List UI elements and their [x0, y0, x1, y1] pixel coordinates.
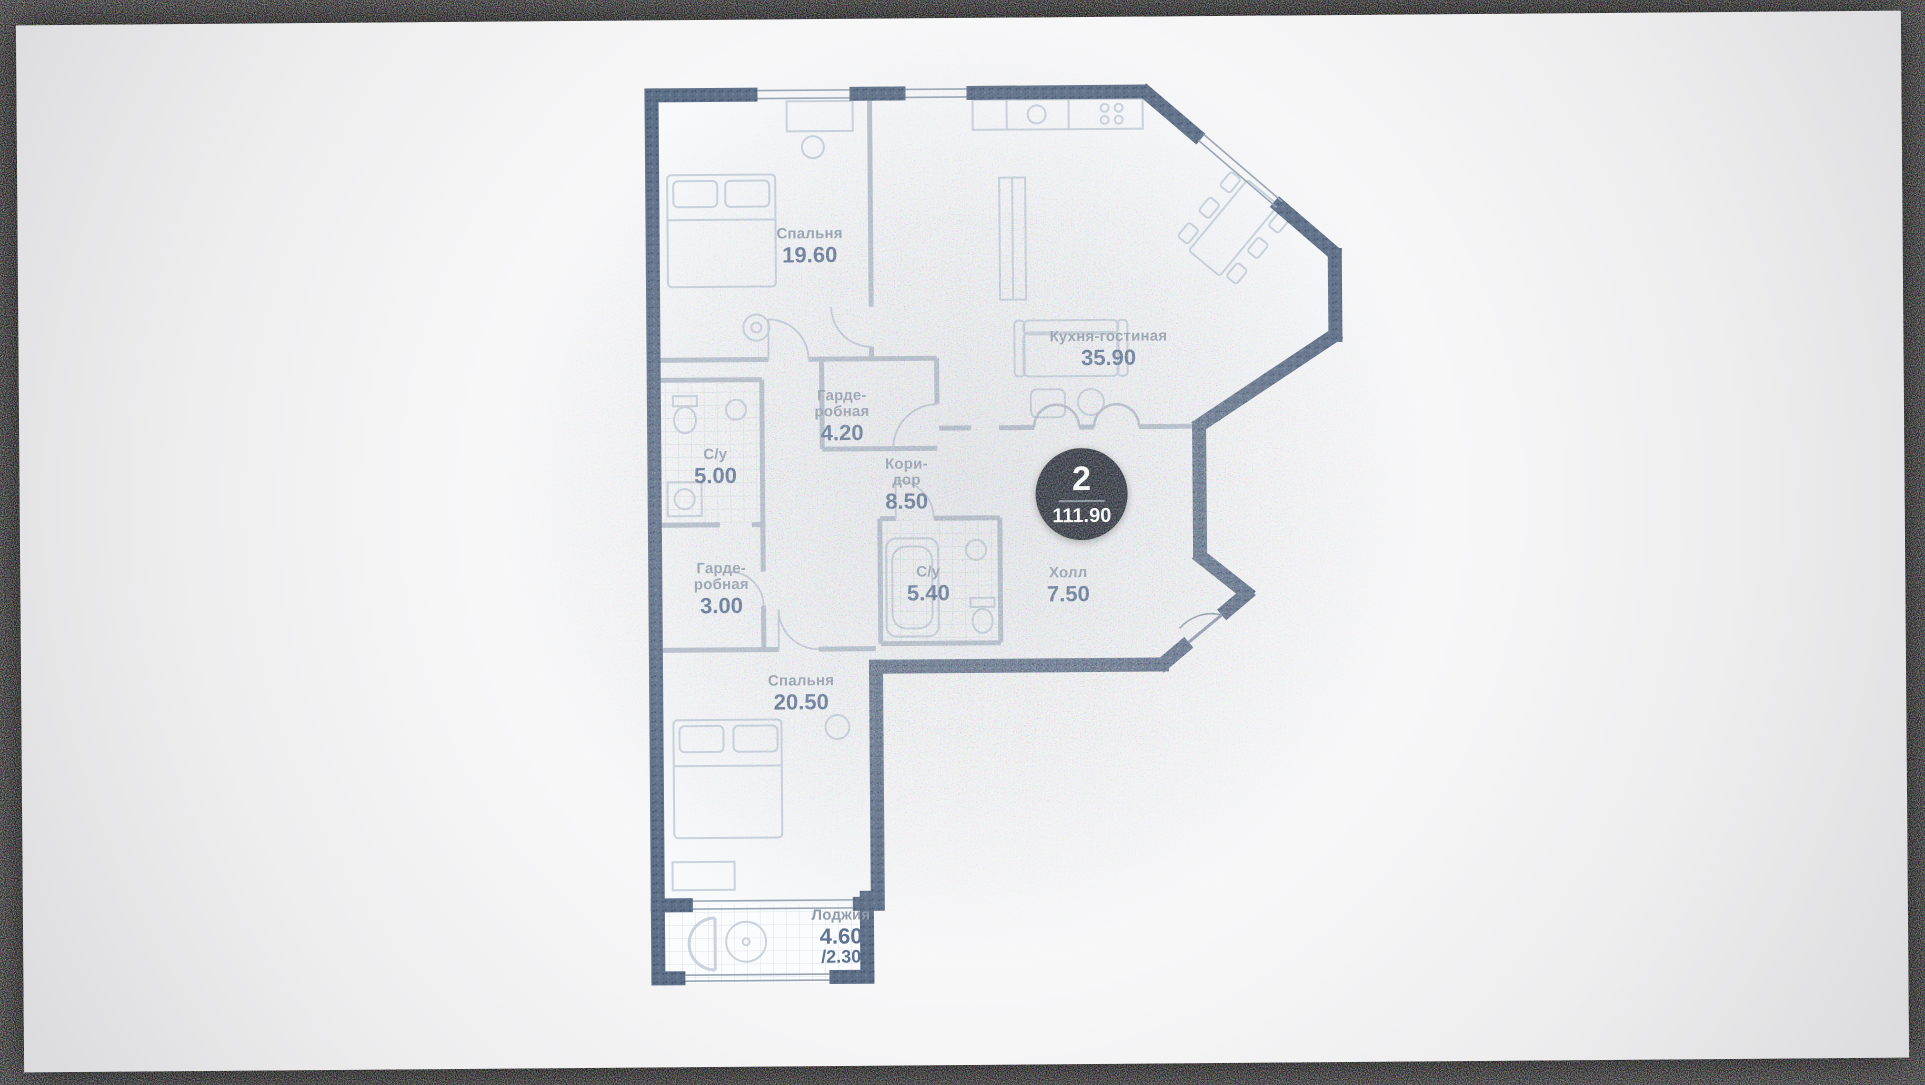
page-background: Спальня 19.60 Кухня-гостиная 35.90 Гарде… — [16, 11, 1909, 1073]
floor-plan: Спальня 19.60 Кухня-гостиная 35.90 Гарде… — [636, 75, 1363, 1001]
badge-divider — [1059, 500, 1105, 502]
bathroom-1-tiles — [656, 382, 761, 524]
badge-rooms-count: 2 — [1072, 462, 1091, 496]
floor-plan-drawing — [636, 75, 1363, 1001]
badge-total-area: 111.90 — [1052, 506, 1111, 526]
apartment-badge[interactable]: 2 111.90 — [1035, 448, 1128, 541]
